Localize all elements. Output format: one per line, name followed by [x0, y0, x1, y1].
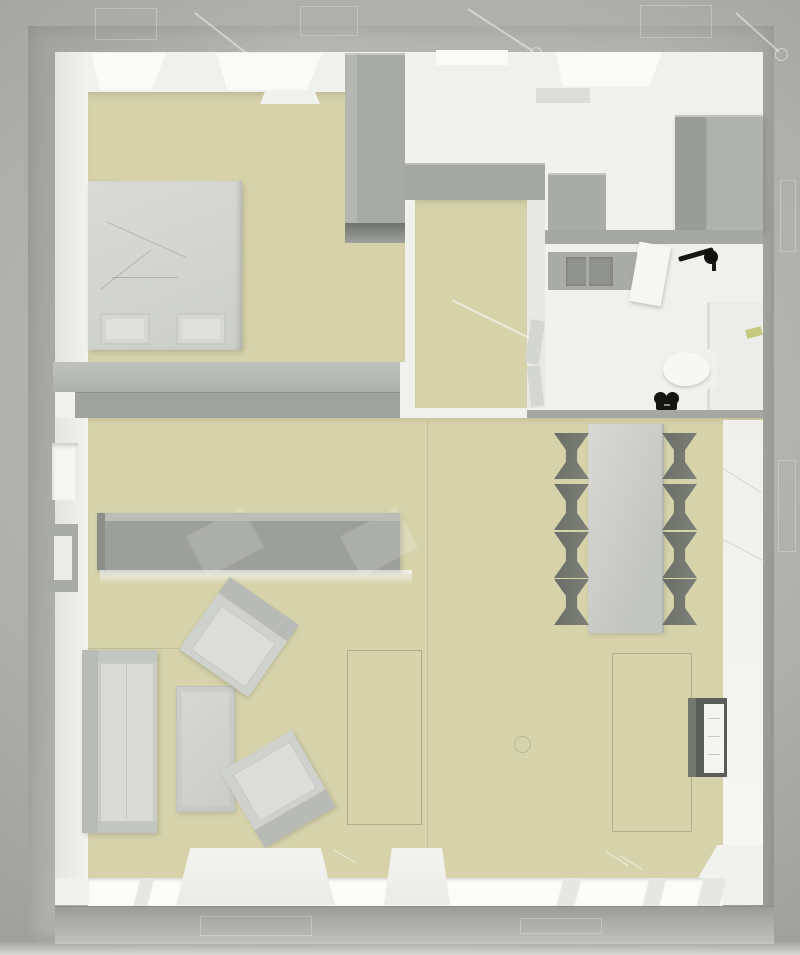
- ceiling-wireframe-rect: [778, 460, 796, 552]
- pillow: [100, 313, 150, 345]
- sofa-seat: [100, 663, 154, 822]
- wall-marble-line: [723, 539, 764, 561]
- sink-basin: [566, 257, 613, 286]
- bathroom-sink-counter: [548, 252, 637, 290]
- bottom-void-highlight: [0, 941, 800, 955]
- floor-seam: [88, 648, 192, 649]
- left-wall-niche: [52, 443, 78, 500]
- right-wall-light-strip: [723, 420, 763, 878]
- dining-table: [588, 424, 664, 633]
- ceiling-wireframe-rect: [520, 918, 602, 934]
- tv-media-unit: [688, 698, 727, 777]
- ceiling-wireframe-rect: [95, 8, 157, 40]
- ceiling-wireframe-rect: [780, 180, 796, 252]
- bottom-exterior-wall: [55, 906, 774, 944]
- entry-top-wall: [405, 163, 545, 200]
- floor-circle-mark: [514, 736, 531, 753]
- kitchen-window-glow-1: [436, 50, 508, 65]
- rug-outline: [612, 653, 692, 832]
- sofa-cushion-seam: [126, 664, 127, 819]
- basin-divider: [586, 257, 589, 286]
- window-bench: [384, 848, 450, 905]
- kitchen-wall-shelf: [536, 88, 590, 103]
- entry-floor: [415, 200, 527, 408]
- kitchen-counter-block: [548, 173, 606, 232]
- tv-screen-panel: [704, 704, 724, 773]
- bedroom-floor-notch: [260, 92, 320, 104]
- pillow: [176, 313, 226, 345]
- sideboard-front-edge: [97, 513, 400, 521]
- bed: [88, 181, 242, 350]
- floor-seam: [427, 420, 428, 878]
- sofa-armrest: [98, 650, 157, 662]
- built-in-closet-lower: [75, 392, 400, 418]
- kitchen-bathroom-divider-wall: [545, 230, 763, 244]
- ceiling-wireframe-rect: [200, 916, 312, 936]
- floorplan-canvas: [0, 0, 800, 955]
- ceiling-wireframe-rect: [300, 6, 358, 36]
- ceiling-wireframe-rect: [640, 5, 712, 38]
- sideboard-end-cap: [97, 513, 105, 570]
- niche-inner-face: [54, 536, 72, 580]
- left-wall-framed-niche: [48, 524, 78, 592]
- sideboard: [97, 513, 400, 570]
- bedroom-left-wall-face: [55, 52, 88, 362]
- shower-floor: [710, 302, 763, 410]
- duvet-fold-line: [100, 249, 151, 289]
- kitchen-window-glow-2: [556, 52, 662, 86]
- kitchen-tall-cabinet: [675, 115, 763, 232]
- faucet-fixture-leg: [712, 262, 716, 271]
- sofa: [82, 650, 157, 833]
- rug-outline: [347, 650, 422, 825]
- tv-unit-side-face: [688, 698, 696, 777]
- wall-marble-line: [722, 468, 762, 493]
- wardrobe-shadow: [345, 223, 405, 243]
- accessory-slit: [664, 404, 670, 406]
- sofa-armrest: [98, 821, 157, 833]
- window-bench: [176, 848, 335, 905]
- built-in-closet-upper: [53, 362, 400, 392]
- sofa-backrest: [82, 650, 98, 833]
- toilet-accessory: [654, 392, 680, 410]
- duvet-fold-line: [112, 277, 178, 278]
- tall-wardrobe: [345, 53, 405, 223]
- coffee-table: [176, 686, 235, 812]
- bedroom-window-glow-2: [212, 53, 322, 90]
